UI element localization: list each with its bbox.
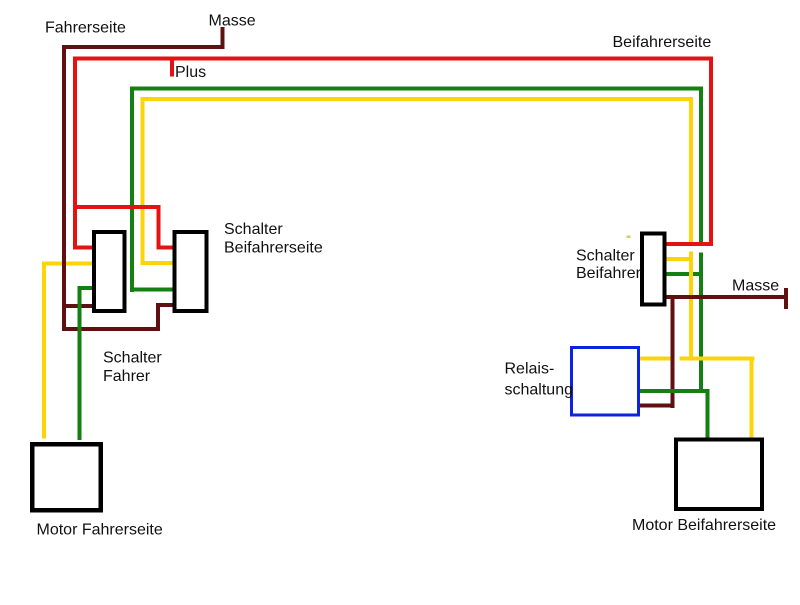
svg-text:schaltung: schaltung <box>505 382 574 399</box>
svg-text:Beifahrerseite: Beifahrerseite <box>224 240 323 257</box>
svg-text:Schalter: Schalter <box>224 221 283 238</box>
svg-text:Schalter: Schalter <box>576 248 635 265</box>
svg-text:Motor Fahrerseite: Motor Fahrerseite <box>37 522 163 539</box>
svg-text:Beifahrerseite: Beifahrerseite <box>613 34 712 51</box>
svg-text:Fahrer: Fahrer <box>103 368 151 385</box>
svg-text:Motor Beifahrerseite: Motor Beifahrerseite <box>632 517 776 534</box>
svg-text:Fahrerseite: Fahrerseite <box>45 20 126 37</box>
svg-text:Masse: Masse <box>732 278 779 295</box>
svg-text:Schalter: Schalter <box>103 350 162 367</box>
svg-text:Masse: Masse <box>209 13 256 30</box>
svg-text:Relais-: Relais- <box>505 361 555 378</box>
svg-text:Beifahrer: Beifahrer <box>576 265 642 282</box>
svg-text:Plus: Plus <box>175 64 206 81</box>
